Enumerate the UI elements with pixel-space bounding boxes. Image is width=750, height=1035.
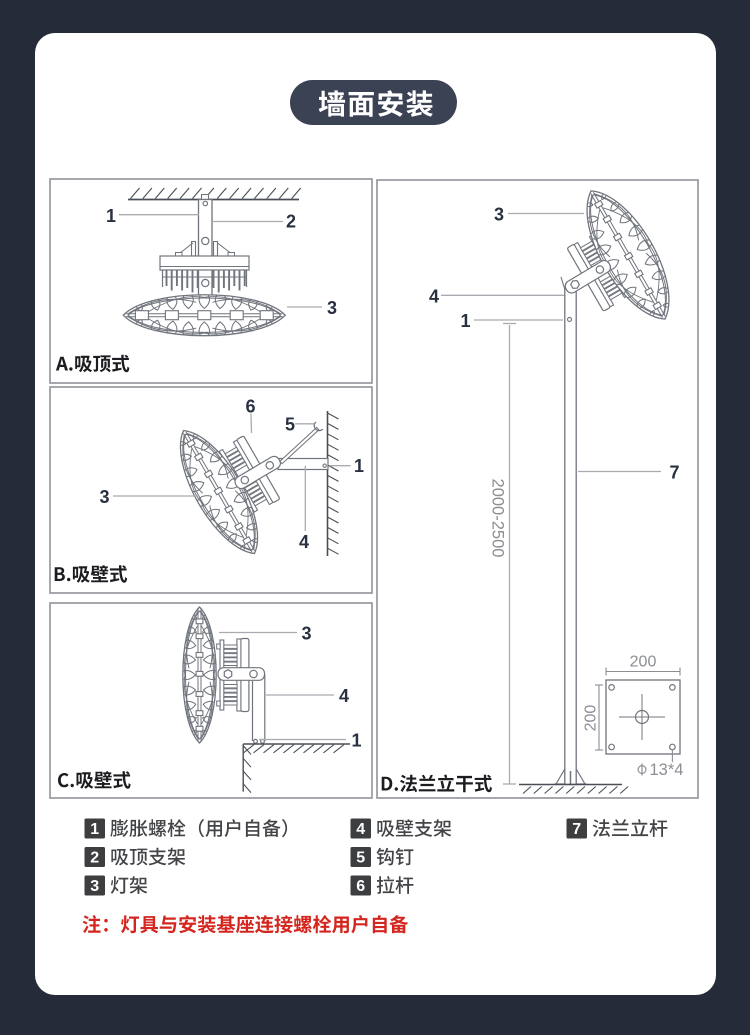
svg-text:200: 200 [630, 654, 657, 671]
svg-text:7: 7 [669, 463, 679, 483]
svg-text:5: 5 [356, 850, 365, 867]
svg-text:5: 5 [285, 414, 295, 434]
svg-text:1: 1 [460, 311, 470, 331]
svg-text:3: 3 [301, 623, 311, 643]
svg-text:1: 1 [106, 206, 116, 226]
svg-text:6: 6 [245, 396, 255, 416]
svg-text:4: 4 [429, 287, 439, 307]
svg-text:200: 200 [583, 705, 600, 732]
svg-text:1: 1 [351, 730, 361, 750]
svg-text:2: 2 [286, 211, 296, 231]
svg-text:6: 6 [356, 878, 365, 895]
svg-text:3: 3 [99, 487, 109, 507]
svg-text:1: 1 [354, 456, 364, 476]
svg-text:4: 4 [299, 532, 309, 552]
svg-text:1: 1 [90, 821, 99, 838]
svg-text:3: 3 [494, 204, 504, 224]
svg-text:3: 3 [90, 878, 99, 895]
svg-text:2: 2 [90, 850, 99, 867]
svg-text:2000-2500: 2000-2500 [489, 479, 507, 558]
svg-text:7: 7 [572, 821, 581, 838]
svg-text:4: 4 [356, 821, 365, 838]
svg-text:13*4: 13*4 [650, 761, 684, 779]
svg-text:4: 4 [339, 686, 349, 706]
svg-text:3: 3 [327, 298, 337, 318]
